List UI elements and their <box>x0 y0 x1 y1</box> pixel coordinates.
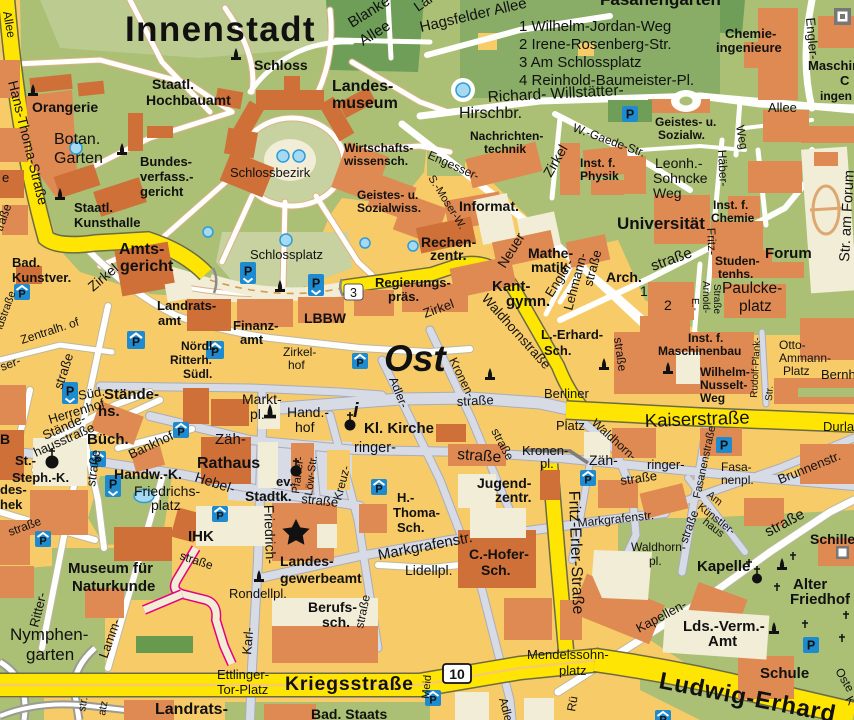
svg-text:Leonh.-: Leonh.- <box>655 155 703 171</box>
svg-text:amt: amt <box>240 332 264 347</box>
svg-text:Ammann-: Ammann- <box>779 351 831 365</box>
svg-text:Arch.: Arch. <box>606 269 642 285</box>
svg-text:technik: technik <box>484 142 526 156</box>
svg-text:P: P <box>132 335 140 349</box>
svg-text:3 Am Schlossplatz: 3 Am Schlossplatz <box>519 54 642 71</box>
svg-text:C.-Hofer-: C.-Hofer- <box>469 546 529 562</box>
svg-text:P: P <box>66 385 74 399</box>
svg-text:Handw.-K.: Handw.-K. <box>114 466 182 482</box>
svg-text:Rondellpl.: Rondellpl. <box>229 586 287 601</box>
svg-text:LBBW: LBBW <box>304 310 347 326</box>
svg-text:B: B <box>0 431 10 447</box>
svg-text:e: e <box>2 170 9 185</box>
svg-text:Nusselt-: Nusselt- <box>700 378 747 392</box>
svg-text:nenpl.: nenpl. <box>721 473 754 487</box>
svg-text:Garten: Garten <box>54 150 103 167</box>
svg-text:Schule: Schule <box>760 665 809 682</box>
svg-text:Nachrichten-: Nachrichten- <box>470 129 543 143</box>
svg-text:Informat.: Informat. <box>459 198 519 214</box>
svg-text:ingenieure: ingenieure <box>716 40 782 55</box>
svg-text:Bernh: Bernh <box>821 367 854 382</box>
svg-text:St.-: St.- <box>15 453 36 468</box>
svg-text:gymn.: gymn. <box>506 293 550 310</box>
svg-text:Finanz-: Finanz- <box>233 318 279 333</box>
svg-text:Kapelle: Kapelle <box>697 558 750 575</box>
svg-text:Maschin: Maschin <box>808 58 854 73</box>
svg-text:präs.: präs. <box>388 289 419 304</box>
svg-text:L.-Erhard-: L.-Erhard- <box>541 327 603 342</box>
svg-text:Platz: Platz <box>556 418 585 433</box>
svg-text:Chemie: Chemie <box>711 211 755 225</box>
svg-text:E.-: E.- <box>689 298 700 311</box>
svg-text:Zäh-: Zäh- <box>589 452 618 468</box>
svg-text:P: P <box>216 511 223 523</box>
svg-text:Staatl.: Staatl. <box>74 200 113 215</box>
svg-text:Allee: Allee <box>768 100 797 115</box>
svg-text:IHK: IHK <box>188 528 214 545</box>
svg-text:Fasa-: Fasa- <box>721 460 752 474</box>
svg-text:Landrats-: Landrats- <box>155 701 228 718</box>
svg-text:Forum: Forum <box>765 245 812 262</box>
svg-text:sch.: sch. <box>322 614 350 630</box>
svg-text:pl.: pl. <box>540 456 554 471</box>
svg-text:2 Irene-Rosenberg-Str.: 2 Irene-Rosenberg-Str. <box>519 36 672 53</box>
svg-text:Büch.: Büch. <box>87 431 129 448</box>
svg-text:pl.: pl. <box>649 554 662 568</box>
svg-text:P: P <box>807 639 815 653</box>
svg-text:Arnold-: Arnold- <box>700 281 711 313</box>
svg-text:Amts-: Amts- <box>119 241 164 258</box>
svg-text:Nördl.: Nördl. <box>181 339 216 353</box>
svg-text:P: P <box>18 289 25 301</box>
svg-text:ringer-: ringer- <box>354 440 396 456</box>
svg-text:Innenstadt: Innenstadt <box>125 10 316 49</box>
svg-text:Friedrich-: Friedrich- <box>261 505 279 565</box>
svg-text:Amt: Amt <box>708 633 737 650</box>
svg-text:Physik: Physik <box>580 169 619 183</box>
svg-text:Landrats-: Landrats- <box>157 298 216 313</box>
svg-text:Fritz-: Fritz- <box>704 227 719 255</box>
svg-text:Inst. f.: Inst. f. <box>580 156 615 170</box>
svg-text:wissensch.: wissensch. <box>343 154 408 168</box>
svg-text:P: P <box>356 358 363 370</box>
svg-text:hof: hof <box>288 358 305 372</box>
svg-text:Geistes- u.: Geistes- u. <box>357 188 418 202</box>
svg-text:Sozialwiss.: Sozialwiss. <box>357 201 421 215</box>
svg-text:Berliner: Berliner <box>544 386 589 401</box>
svg-text:Fasanengarten: Fasanengarten <box>600 0 721 9</box>
svg-text:atz: atz <box>96 700 110 717</box>
svg-text:Orangerie: Orangerie <box>32 99 98 115</box>
svg-text:Kunsthalle: Kunsthalle <box>74 215 140 230</box>
svg-text:Zirkel-: Zirkel- <box>283 345 316 359</box>
svg-text:P: P <box>39 536 46 548</box>
svg-text:Schloss: Schloss <box>254 57 308 73</box>
svg-text:Stände-: Stände- <box>104 386 159 403</box>
svg-text:Schlossbezirk: Schlossbezirk <box>230 165 311 180</box>
svg-text:Kriegsstraße: Kriegsstraße <box>285 673 414 695</box>
svg-text:P: P <box>312 277 320 291</box>
svg-text:Wirtschafts-: Wirtschafts- <box>344 141 413 155</box>
svg-text:platz: platz <box>151 497 181 513</box>
svg-text:Platz: Platz <box>783 364 810 378</box>
svg-text:Inst. f.: Inst. f. <box>713 198 748 212</box>
svg-text:tenhs.: tenhs. <box>718 267 753 281</box>
svg-text:2: 2 <box>664 297 672 313</box>
svg-text:C: C <box>840 73 850 88</box>
svg-text:H.-: H.- <box>397 490 414 505</box>
svg-text:Karl-: Karl- <box>239 627 256 656</box>
svg-text:gericht: gericht <box>120 258 174 275</box>
svg-text:Friedhof: Friedhof <box>790 591 851 608</box>
svg-text:Chemie-: Chemie- <box>725 26 776 41</box>
svg-text:Mendelssohn-: Mendelssohn- <box>527 647 609 662</box>
svg-text:Schlossplatz: Schlossplatz <box>250 247 323 262</box>
svg-text:zentr.: zentr. <box>430 247 467 263</box>
svg-text:straße: straße <box>456 392 494 409</box>
svg-text:Stadtk.: Stadtk. <box>245 488 292 504</box>
svg-text:Rathaus: Rathaus <box>197 455 260 472</box>
svg-text:Thoma-: Thoma- <box>393 505 440 520</box>
svg-text:Südl.: Südl. <box>183 367 212 381</box>
svg-text:Weg: Weg <box>700 391 725 405</box>
svg-text:1 Wilhelm-Jordan-Weg: 1 Wilhelm-Jordan-Weg <box>519 18 671 35</box>
svg-text:Nymphen-: Nymphen- <box>10 625 88 644</box>
svg-text:Museum für: Museum für <box>68 560 153 577</box>
svg-text:ingen: ingen <box>820 89 852 103</box>
svg-text:straße: straße <box>457 446 502 466</box>
svg-text:3: 3 <box>350 286 357 300</box>
svg-text:museum: museum <box>332 95 398 112</box>
svg-text:Sohncke: Sohncke <box>653 170 708 186</box>
svg-text:Lidellpl.: Lidellpl. <box>405 562 452 578</box>
svg-text:10: 10 <box>449 666 465 682</box>
svg-text:Ost: Ost <box>384 338 447 379</box>
svg-text:garten: garten <box>26 645 74 664</box>
svg-text:i: i <box>353 400 359 422</box>
svg-text:Maschinenbau: Maschinenbau <box>658 344 741 358</box>
svg-text:Paulcke-: Paulcke- <box>722 280 782 297</box>
svg-text:amt: amt <box>158 313 182 328</box>
svg-text:verfass.-: verfass.- <box>140 169 193 184</box>
svg-text:Staatl.: Staatl. <box>152 76 194 92</box>
svg-text:platz: platz <box>559 663 586 678</box>
svg-text:Sch.: Sch. <box>397 520 424 535</box>
svg-text:Regierungs-: Regierungs- <box>375 275 451 290</box>
svg-text:Botan.: Botan. <box>54 131 100 148</box>
svg-text:Weg: Weg <box>653 185 682 201</box>
svg-text:Otto-: Otto- <box>779 338 806 352</box>
svg-text:Durla: Durla <box>823 419 854 434</box>
svg-text:zentr.: zentr. <box>495 489 532 505</box>
svg-text:hek: hek <box>0 497 23 512</box>
svg-text:Bad.: Bad. <box>12 255 40 270</box>
svg-text:Bundes-: Bundes- <box>140 154 192 169</box>
svg-text:Rü: Rü <box>564 695 580 713</box>
svg-text:gericht: gericht <box>140 184 184 199</box>
svg-text:Inst. f.: Inst. f. <box>688 331 723 345</box>
svg-text:Sch.: Sch. <box>481 562 511 578</box>
svg-text:Waldhorn-: Waldhorn- <box>631 540 686 554</box>
svg-text:Naturkunde: Naturkunde <box>72 578 155 595</box>
svg-text:Studen-: Studen- <box>715 254 760 268</box>
svg-text:Hand.-: Hand.- <box>287 404 329 420</box>
svg-text:Kaiserstraße: Kaiserstraße <box>644 406 750 431</box>
svg-text:Hochbauamt: Hochbauamt <box>146 92 231 108</box>
svg-text:P: P <box>720 439 728 453</box>
svg-text:Straße: Straße <box>711 284 722 314</box>
svg-text:Geistes- u.: Geistes- u. <box>655 115 716 129</box>
svg-text:Landes-: Landes- <box>332 78 393 95</box>
svg-text:P: P <box>244 265 252 279</box>
svg-text:Landes-: Landes- <box>280 553 334 569</box>
svg-text:Ettlinger-: Ettlinger- <box>217 667 269 682</box>
svg-text:gewerbeamt: gewerbeamt <box>280 570 362 586</box>
svg-text:Universität: Universität <box>617 214 705 233</box>
svg-text:P: P <box>584 475 591 487</box>
svg-text:Meid: Meid <box>420 674 434 699</box>
svg-text:P: P <box>375 484 382 496</box>
svg-text:Str.: Str. <box>764 386 776 402</box>
svg-text:Schille: Schille <box>810 531 854 547</box>
svg-text:Ritterh.: Ritterh. <box>170 353 212 367</box>
svg-text:str.: str. <box>76 696 90 713</box>
svg-text:Bad. Staats: Bad. Staats <box>311 706 387 720</box>
svg-text:hof: hof <box>295 419 315 435</box>
svg-text:pl.: pl. <box>250 406 265 422</box>
svg-text:Berufs-: Berufs- <box>308 599 357 615</box>
svg-text:Sozialw.: Sozialw. <box>658 128 705 142</box>
svg-text:Wilhelm-: Wilhelm- <box>700 365 750 379</box>
svg-text:Zäh-: Zäh- <box>215 431 246 448</box>
svg-text:Häber-: Häber- <box>715 149 731 186</box>
svg-text:des-: des- <box>0 482 27 497</box>
svg-text:platz: platz <box>739 298 772 315</box>
svg-text:Markt-: Markt- <box>242 391 282 407</box>
svg-text:Hirschbr.: Hirschbr. <box>459 105 522 122</box>
svg-text:Kl. Kirche: Kl. Kirche <box>364 420 434 437</box>
svg-text:P: P <box>626 108 634 122</box>
svg-text:P: P <box>177 427 184 439</box>
svg-text:Tor-Platz: Tor-Platz <box>217 682 268 697</box>
svg-text:P: P <box>659 715 666 720</box>
svg-text:Sch.: Sch. <box>544 343 571 358</box>
svg-text:Kunstver.: Kunstver. <box>12 270 71 285</box>
svg-text:1: 1 <box>640 283 648 299</box>
